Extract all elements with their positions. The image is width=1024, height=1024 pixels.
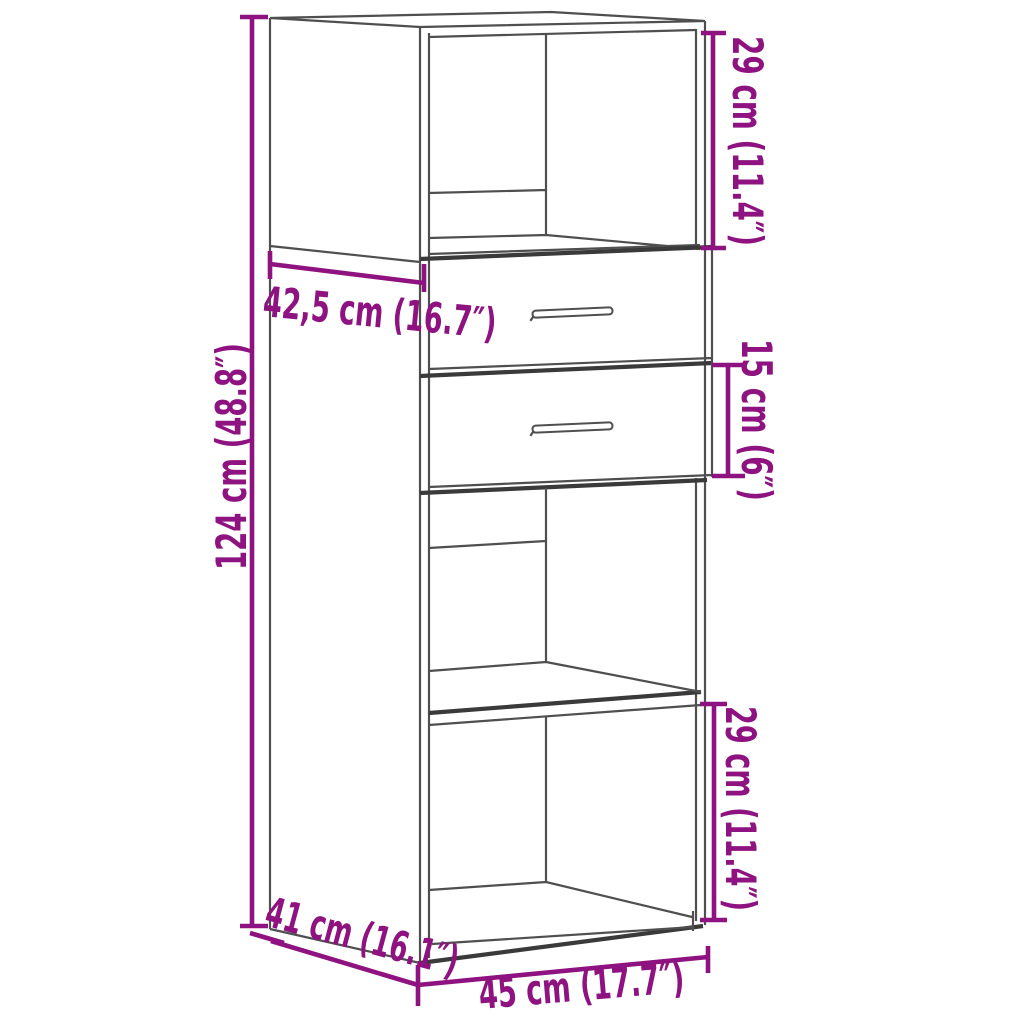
dim-total-height-label: 124 cm (48.8″) [207, 343, 256, 570]
cabinet-drawing [270, 12, 712, 963]
dim-depth: 41 cm (16.1″) [250, 887, 464, 1006]
handle-bar-icon [532, 422, 612, 432]
dim-top-compartment-height: 29 cm (11.4″) [701, 33, 772, 248]
cabinet-left-side-panel [270, 18, 420, 963]
drawer-2-handle [530, 422, 613, 436]
dimension-diagram: 124 cm (48.8″) 29 cm (11.4″) 42,5 cm (16… [0, 0, 1024, 1024]
handle-end-cap [530, 431, 534, 436]
bottom-compartment-interior [429, 716, 694, 944]
cabinet-top-face [270, 12, 705, 27]
dim-drawer-height-label: 15 cm (6″) [732, 339, 781, 501]
dim-top-compartment-label: 29 cm (11.4″) [723, 36, 772, 246]
dim-top-depth-label: 42,5 cm (16.7″) [261, 277, 499, 348]
dim-drawer-height: 15 cm (6″) [712, 339, 781, 501]
top-compartment-interior [429, 30, 700, 254]
dim-depth-label: 41 cm (16.1″) [260, 887, 464, 986]
drawer-1-handle [530, 307, 613, 321]
handle-end-cap [530, 316, 534, 321]
handle-bar-icon [532, 307, 612, 317]
middle-compartment-shelf [429, 488, 701, 725]
dim-top-depth: 42,5 cm (16.7″) [261, 251, 499, 348]
dim-bottom-compartment-height: 29 cm (11.4″) [700, 704, 765, 920]
diagram-canvas: 124 cm (48.8″) 29 cm (11.4″) 42,5 cm (16… [0, 0, 1024, 1024]
panel-front-edges [420, 247, 712, 963]
dim-width-label: 45 cm (17.7″) [477, 953, 686, 1019]
dim-bottom-compartment-label: 29 cm (11.4″) [716, 706, 765, 911]
dim-total-height: 124 cm (48.8″) [207, 17, 268, 926]
